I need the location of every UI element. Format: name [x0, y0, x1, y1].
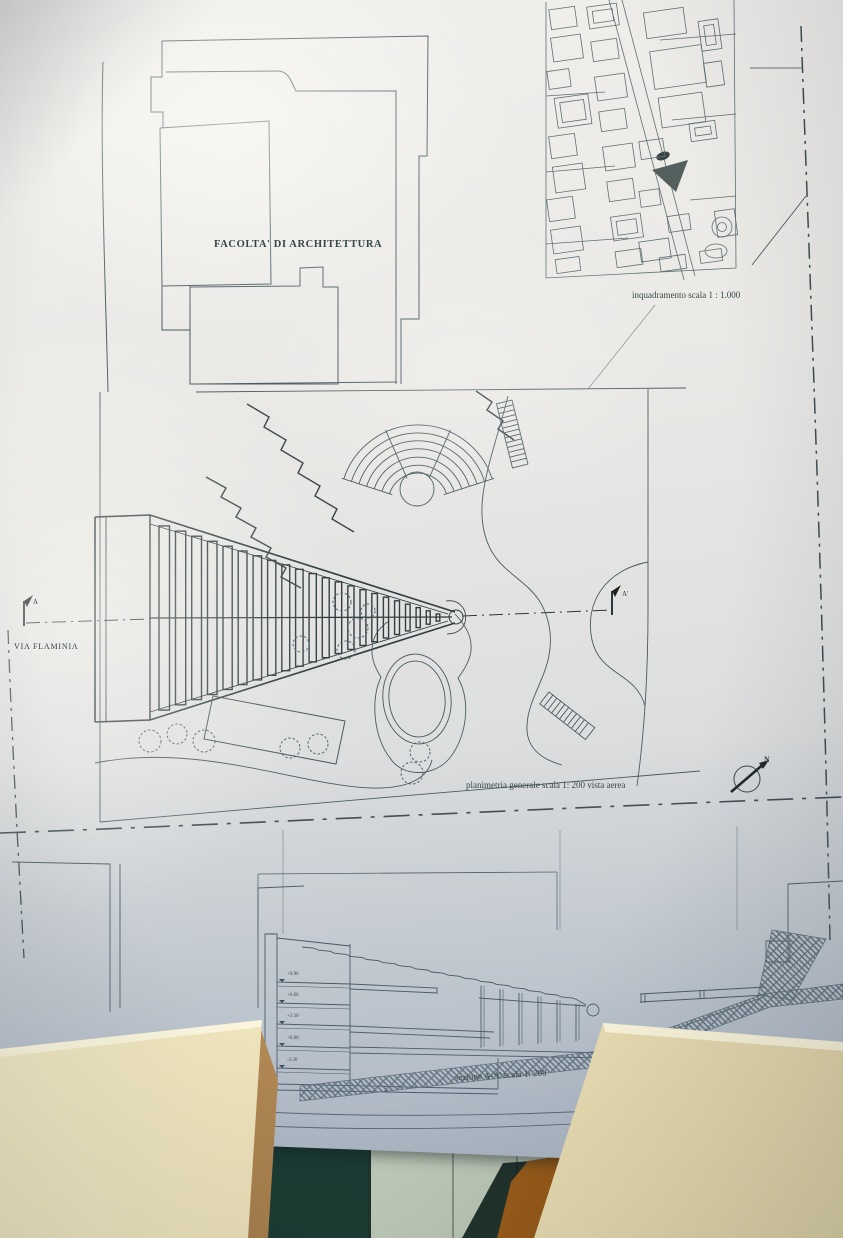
photo-vignette	[0, 0, 843, 1238]
photo: FACOLTA' DI ARCHITETTURA inquadramento s…	[0, 0, 843, 1238]
